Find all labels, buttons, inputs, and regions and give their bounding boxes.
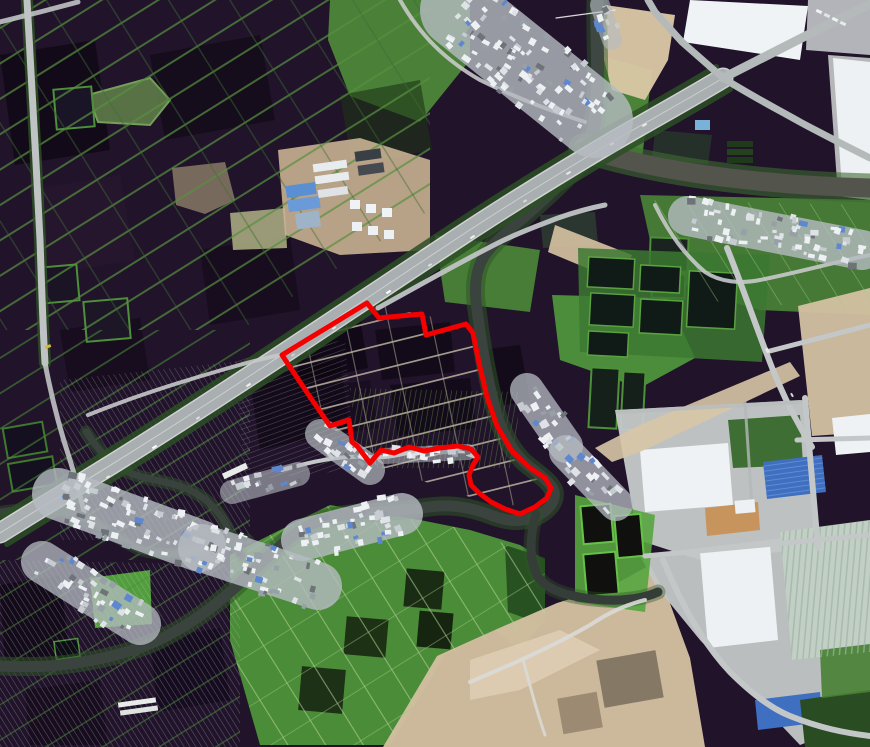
house-roof — [332, 519, 337, 524]
house-roof — [95, 532, 102, 539]
gray-building — [295, 210, 321, 229]
house-roof — [344, 535, 348, 539]
tower-under-construction — [352, 222, 362, 231]
house-roof — [385, 530, 392, 535]
blue-pool — [695, 120, 710, 130]
pond — [3, 422, 48, 458]
house-roof — [236, 552, 241, 556]
tower-under-construction — [350, 200, 360, 209]
house-roof — [177, 509, 185, 517]
satellite-map — [0, 0, 870, 747]
house-roof — [778, 243, 782, 248]
wetland-pond — [588, 367, 619, 428]
white-building — [734, 499, 755, 514]
house-roof — [792, 217, 797, 224]
house-roof — [795, 244, 802, 250]
tower-under-construction — [368, 226, 378, 235]
fishpond — [639, 265, 680, 293]
house-roof — [421, 456, 428, 460]
house-roof — [707, 236, 713, 242]
house-roof — [322, 523, 329, 528]
house-roof — [377, 537, 382, 544]
house-roof — [297, 478, 301, 483]
warehouse-roof-white — [832, 414, 870, 455]
dirt-dark-patch — [596, 650, 663, 708]
dark-plot — [343, 616, 388, 658]
house-roof — [760, 236, 768, 239]
dark-plot — [416, 611, 453, 650]
house-roof — [347, 522, 353, 529]
industrial-row — [727, 149, 753, 155]
house-roof — [687, 198, 696, 205]
dark-plot — [298, 666, 346, 714]
house-roof — [772, 230, 777, 233]
tower-under-construction — [382, 208, 392, 217]
house-roof — [254, 552, 263, 560]
house-roof — [779, 233, 784, 238]
house-roof — [157, 511, 164, 517]
industrial-row — [727, 157, 753, 163]
house-roof — [172, 515, 176, 519]
house-roof — [317, 532, 324, 539]
house-roof — [360, 522, 365, 526]
house-roof — [174, 559, 182, 567]
house-roof — [292, 464, 297, 470]
fishpond — [589, 293, 635, 327]
industrial-row — [727, 141, 753, 147]
house-roof — [64, 518, 69, 523]
house-roof — [384, 511, 388, 516]
satellite-screenshot — [0, 0, 870, 747]
house-roof — [458, 453, 467, 459]
house-roof — [210, 544, 217, 552]
house-roof — [358, 539, 364, 546]
house-roof — [836, 243, 841, 249]
dirt-dark-patch — [557, 692, 603, 734]
house-roof — [848, 263, 857, 270]
fishpond — [639, 299, 683, 335]
house-roof — [810, 230, 818, 236]
house-roof — [334, 546, 341, 551]
house-roof — [63, 493, 70, 500]
road-warehouse-east — [797, 438, 870, 440]
house-roof — [447, 457, 454, 464]
tower-under-construction — [384, 230, 394, 239]
house-roof — [739, 240, 748, 244]
warehouse-roof-white — [700, 545, 778, 648]
fishpond — [583, 552, 619, 597]
house-roof — [377, 494, 387, 501]
house-roof — [722, 228, 730, 236]
fishpond — [587, 331, 628, 357]
house-roof — [725, 203, 729, 210]
warehouse-roof-white — [640, 443, 733, 512]
tower-under-construction — [366, 204, 376, 213]
fishpond — [587, 257, 635, 289]
house-roof — [304, 534, 308, 538]
trees-bottom-right — [800, 690, 870, 747]
